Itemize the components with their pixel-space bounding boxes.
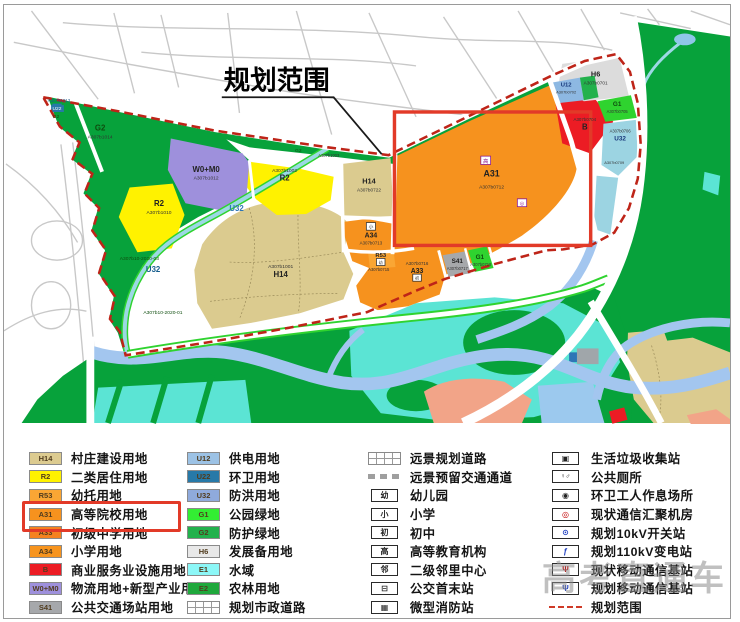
legend-row: R2二类居住用地 [29, 468, 187, 487]
legend-row: 规划范围 [549, 598, 705, 617]
map-frame: 规划范围 A307b1013U22G2G2A307b1014W0+M0A307b… [3, 4, 731, 619]
map-parcel-label: 初 [415, 275, 419, 281]
legend-label: 生活垃圾收集站 [591, 449, 681, 467]
legend-label: 水域 [229, 561, 255, 579]
map-parcel-label: A307b0716 [406, 261, 429, 266]
map-parcel-label: A307b10-2020-01 [143, 310, 182, 316]
legend-row: ⊟公交首末站 [368, 579, 549, 598]
legend-label: 公共交通场站用地 [71, 598, 173, 616]
legend-label: 发展备用地 [229, 542, 293, 560]
legend-column-landuse-2: U12供电用地U22环卫用地U32防洪用地G1公园绿地G2防护绿地H6发展备用地… [187, 449, 368, 616]
legend-label: 规划110kV变电站 [591, 542, 692, 560]
map-parcel-label: G1 [476, 254, 485, 261]
map-parcel-label: U32 [614, 135, 626, 142]
legend-row: ◉环卫工人作息场所 [549, 486, 705, 505]
mobile-base-existing-icon: Ψ [552, 563, 579, 576]
legend-row: 远景规划道路 [368, 449, 549, 468]
legend-row: ♀♂公共厕所 [549, 468, 705, 487]
map-parcel-label: G2 [295, 148, 302, 154]
map-parcel-label: A307b0709 [604, 160, 624, 165]
map-parcel-label: A307b1010 [146, 210, 171, 216]
map-parcel-label: A307b1013 [48, 98, 71, 103]
legend-label: 小学 [410, 505, 436, 523]
legend-label: 环卫用地 [229, 468, 280, 486]
map-parcel-label: H14 [273, 270, 288, 279]
map-title: 规划范围 [224, 65, 330, 95]
legend-label: 现状通信汇聚机房 [591, 505, 693, 523]
legend-label: 初中 [410, 524, 436, 542]
legend-label: 规划移动通信基站 [591, 579, 693, 597]
map-parcel-label: G1 [613, 101, 622, 108]
map-parcel-label: B [582, 123, 588, 132]
map-parcel-label: A307b0706 [610, 129, 632, 134]
map-parcel-label: R2 [154, 199, 165, 208]
legend-swatch-r2: R2 [29, 470, 62, 483]
map-parcel-label: 幼 [379, 259, 383, 265]
legend-row: 高高等教育机构 [368, 542, 549, 561]
legend-row: B商业服务业设施用地 [29, 561, 187, 580]
legend-label: 小学用地 [71, 542, 122, 560]
legend-row: U32防洪用地 [187, 486, 368, 505]
map-parcel-label: A307b0718 [470, 262, 492, 267]
public-toilet-icon: ♀♂ [552, 470, 579, 483]
legend-swatch-b: B [29, 563, 62, 576]
legend-label: 公园绿地 [229, 505, 280, 523]
legend-column-landuse-1: H14村庄建设用地R2二类居住用地R53幼托用地A31高等院校用地A33初级中学… [4, 449, 187, 616]
legend-row: W0+M0物流用地+新型产业用地 [29, 579, 187, 598]
legend-row: ◎现状通信汇聚机房 [549, 505, 705, 524]
map-parcel-label: A307b0704 [574, 117, 597, 122]
legend-label: 远景预留交通通道 [410, 468, 512, 486]
legend-label: 公共厕所 [591, 468, 642, 486]
legend-row: A31高等院校用地 [29, 505, 187, 524]
legend-row: R53幼托用地 [29, 486, 187, 505]
planning-map-page: 规划范围 A307b1013U22G2G2A307b1014W0+M0A307b… [0, 0, 740, 622]
legend-swatch-g1: G1 [187, 508, 220, 521]
legend-row: ▦微型消防站 [368, 598, 549, 617]
legend-label: 商业服务业设施用地 [71, 561, 186, 579]
higher-education-icon: 高 [371, 545, 398, 558]
map-parcel-label: G2 [53, 114, 60, 120]
legend-row: 幼幼儿园 [368, 486, 549, 505]
planning-boundary-icon [549, 606, 582, 608]
primary-school-icon: 小 [371, 508, 398, 521]
legend-swatch-u22: U22 [187, 470, 220, 483]
map-parcel-label: R2 [280, 174, 291, 183]
reserved-corridor-icon [368, 474, 401, 479]
legend-label: 二级邻里中心 [410, 561, 487, 579]
map-parcel-label: H14 [362, 177, 376, 186]
legend: H14村庄建设用地R2二类居住用地R53幼托用地A31高等院校用地A33初级中学… [4, 425, 730, 618]
map-parcel-label: S41 [452, 258, 464, 265]
legend-label: 幼托用地 [71, 486, 122, 504]
map-parcel-label: A307b0713 [360, 240, 383, 245]
legend-row: ⊙规划10kV开关站 [549, 523, 705, 542]
bus-terminus-icon: ⊟ [371, 582, 398, 595]
map-parcel-label: A307b1003 [318, 153, 340, 158]
map-parcel-label: A34 [365, 233, 378, 240]
legend-row: 远景预留交通通道 [368, 468, 549, 487]
legend-swatch-u32: U32 [187, 489, 220, 502]
map-parcel-label: H6 [591, 70, 600, 79]
legend-column-facilities-1: 远景规划道路远景预留交通通道幼幼儿园小小学初初中高高等教育机构邻二级邻里中心⊟公… [368, 449, 549, 616]
legend-row: 小小学 [368, 505, 549, 524]
legend-row: 规划市政道路 [187, 598, 368, 617]
map-parcel-label: A307b1014 [88, 134, 113, 140]
map-parcel-label: U32 [229, 204, 244, 213]
legend-swatch-e2: E2 [187, 582, 220, 595]
legend-row: A33初级中学用地 [29, 523, 187, 542]
legend-label: 微型消防站 [410, 598, 474, 616]
legend-label: 防护绿地 [229, 524, 280, 542]
legend-swatch-u12: U12 [187, 452, 220, 465]
legend-row: H14村庄建设用地 [29, 449, 187, 468]
map-parcel-label: A31 [484, 169, 500, 179]
legend-row: A34小学用地 [29, 542, 187, 561]
map-parcel-label: A307b0701 [584, 81, 608, 86]
map-parcel-label: 高 [483, 157, 489, 165]
middle-school-icon: 初 [371, 526, 398, 539]
legend-label: 高等院校用地 [71, 505, 148, 523]
map-parcel-label: A307b0702 [556, 89, 576, 94]
legend-label: 高等教育机构 [410, 542, 487, 560]
legend-row: ▣生活垃圾收集站 [549, 449, 705, 468]
land-use-map: 规划范围 A307b1013U22G2G2A307b1014W0+M0A307b… [4, 5, 730, 425]
sanitation-rest-icon: ◉ [552, 489, 579, 502]
legend-label: 农林用地 [229, 579, 280, 597]
legend-swatch-g2: G2 [187, 526, 220, 539]
map-parcel-label: A307b0712 [479, 185, 504, 191]
legend-label: 防洪用地 [229, 486, 280, 504]
legend-label: 二类居住用地 [71, 468, 148, 486]
legend-row: Ψ现状移动通信基站 [549, 561, 705, 580]
legend-swatch-s41: S41 [29, 601, 62, 614]
fire-station-icon: ▦ [371, 601, 398, 614]
legend-row: E2农林用地 [187, 579, 368, 598]
legend-swatch-h6: H6 [187, 545, 220, 558]
legend-row: E1水域 [187, 561, 368, 580]
legend-label: 供电用地 [229, 449, 280, 467]
future-road-icon [368, 452, 401, 465]
legend-label: 远景规划道路 [410, 449, 487, 467]
legend-label: 初级中学用地 [71, 524, 148, 542]
neighborhood-center-icon: 邻 [371, 563, 398, 576]
substation-110kv-icon: ƒ [552, 545, 579, 558]
map-parcel-label: ◎ [520, 201, 524, 207]
legend-row: G2防护绿地 [187, 523, 368, 542]
trash-collection-icon: ▣ [552, 452, 579, 465]
map-parcel-label: U22 [52, 106, 61, 112]
mobile-base-planned-icon: Ψ [552, 582, 579, 595]
legend-label: 规划10kV开关站 [591, 524, 686, 542]
map-parcel-label: A307b0715 [368, 267, 390, 272]
map-parcel-label: U12 [561, 82, 573, 88]
map-parcel-label: A307b0717 [447, 266, 469, 271]
legend-swatch-e1: E1 [187, 563, 220, 576]
planned-road-icon [187, 601, 220, 614]
legend-swatch-a33: A33 [29, 526, 62, 539]
legend-label: 环卫工人作息场所 [591, 486, 693, 504]
map-parcel-label: A307b1012 [194, 176, 219, 182]
map-parcel-label: A307b10-2020-03 [120, 256, 159, 262]
legend-row: G1公园绿地 [187, 505, 368, 524]
legend-label: 现状移动通信基站 [591, 561, 693, 579]
legend-row: S41公共交通场站用地 [29, 598, 187, 617]
map-parcel-label: A307b0722 [357, 187, 381, 192]
map-parcel-label: U32 [146, 265, 161, 274]
legend-row: ƒ规划110kV变电站 [549, 542, 705, 561]
legend-swatch-r53: R53 [29, 489, 62, 502]
legend-row: 初初中 [368, 523, 549, 542]
legend-row: U12供电用地 [187, 449, 368, 468]
map-parcel-label: G2 [95, 124, 106, 133]
kindergarten-icon: 幼 [371, 489, 398, 502]
legend-swatch-a31: A31 [29, 508, 62, 521]
legend-swatch-w0m0: W0+M0 [29, 582, 62, 595]
map-parcel-label: A307b0705 [607, 109, 629, 114]
legend-label: 村庄建设用地 [71, 449, 148, 467]
map-parcel-label: 小 [369, 224, 374, 231]
map-parcel-label: W0+M0 [193, 165, 221, 174]
legend-row: Ψ规划移动通信基站 [549, 579, 705, 598]
legend-label: 幼儿园 [410, 486, 448, 504]
switch-station-10kv-icon: ⊙ [552, 526, 579, 539]
legend-column-facilities-2: ▣生活垃圾收集站♀♂公共厕所◉环卫工人作息场所◎现状通信汇聚机房⊙规划10kV开… [549, 449, 705, 616]
legend-label: 公交首末站 [410, 579, 474, 597]
legend-label: 规划市政道路 [229, 598, 306, 616]
legend-swatch-h14: H14 [29, 452, 62, 465]
legend-label: 规划范围 [591, 598, 642, 616]
legend-swatch-a34: A34 [29, 545, 62, 558]
legend-row: H6发展备用地 [187, 542, 368, 561]
legend-row: U22环卫用地 [187, 468, 368, 487]
map-canvas: 规划范围 A307b1013U22G2G2A307b1014W0+M0A307b… [4, 5, 730, 425]
comm-hub-room-icon: ◎ [552, 508, 579, 521]
legend-row: 邻二级邻里中心 [368, 561, 549, 580]
